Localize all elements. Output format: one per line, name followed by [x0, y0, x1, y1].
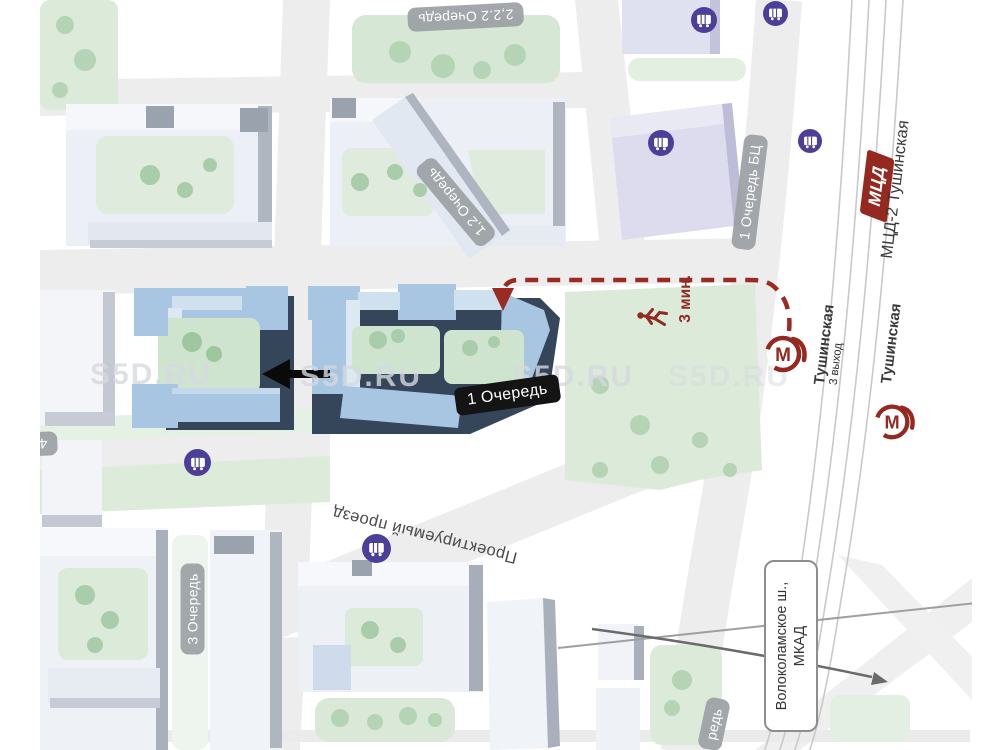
svg-text:М: М — [775, 345, 791, 366]
bus-stop-icon — [184, 449, 211, 476]
highway-name-mkad: МКАД — [791, 561, 809, 731]
svg-text:М: М — [884, 413, 899, 433]
bus-stop-icon — [362, 534, 391, 563]
walking-person-icon — [636, 302, 675, 332]
metro-station-icon: М — [871, 399, 915, 448]
left-margin — [0, 0, 40, 750]
phase-3-badge: 3 Очередь — [181, 563, 205, 654]
bus-stop-icon — [763, 1, 788, 26]
highway-label-box: Волоколамское ш., МКАД — [764, 560, 818, 732]
metro-station-icon: М — [761, 330, 807, 381]
bus-stop-icon — [691, 7, 717, 33]
site-map: S5D.RU S5D.RU S5D.RU S5D.RU 2,2.2 Очеред… — [0, 0, 1000, 750]
watermark: S5D.RU — [90, 358, 212, 392]
watermark: S5D.RU — [300, 360, 422, 394]
right-margin — [972, 0, 1000, 750]
walk-time-label: 3 мин. — [677, 275, 695, 323]
bus-stop-icon — [798, 129, 822, 153]
highway-name: Волоколамское ш., — [773, 561, 791, 731]
bus-stop-icon — [648, 130, 674, 156]
